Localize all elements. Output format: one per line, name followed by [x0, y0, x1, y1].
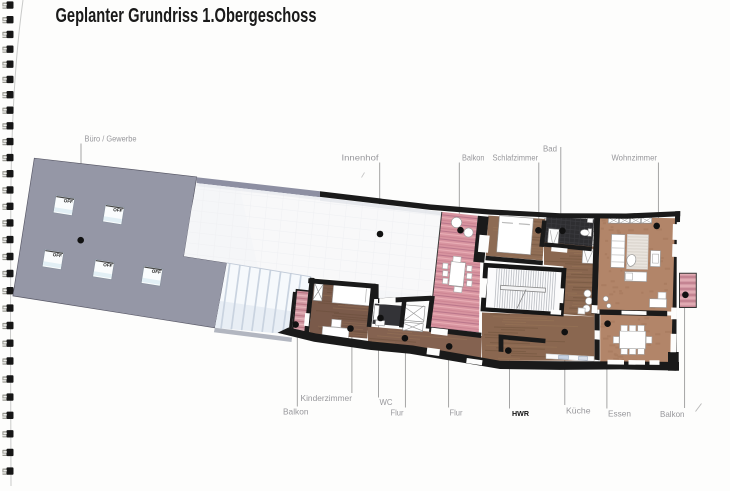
- svg-text:Balkon: Balkon: [283, 408, 309, 417]
- svg-text:Schlafzimmer: Schlafzimmer: [493, 154, 539, 163]
- svg-text:Wohnzimmer: Wohnzimmer: [612, 154, 658, 163]
- svg-text:Büro / Gewerbe: Büro / Gewerbe: [85, 135, 137, 144]
- svg-text:Essen: Essen: [608, 410, 631, 419]
- svg-text:Bad: Bad: [543, 145, 557, 154]
- svg-text:Küche: Küche: [566, 407, 591, 416]
- svg-text:Kinderzimmer: Kinderzimmer: [301, 394, 353, 403]
- svg-text:Balkon: Balkon: [660, 410, 685, 419]
- svg-text:Geplanter Grundriss 1.Obergesc: Geplanter Grundriss 1.Obergeschoss: [56, 4, 317, 27]
- svg-text:Balkon: Balkon: [462, 154, 485, 163]
- svg-text:WC: WC: [380, 398, 393, 407]
- svg-text:Flur: Flur: [450, 409, 463, 418]
- svg-text:HWR: HWR: [512, 409, 529, 418]
- svg-text:Flur: Flur: [391, 409, 404, 418]
- svg-text:Innenhof: Innenhof: [342, 154, 380, 163]
